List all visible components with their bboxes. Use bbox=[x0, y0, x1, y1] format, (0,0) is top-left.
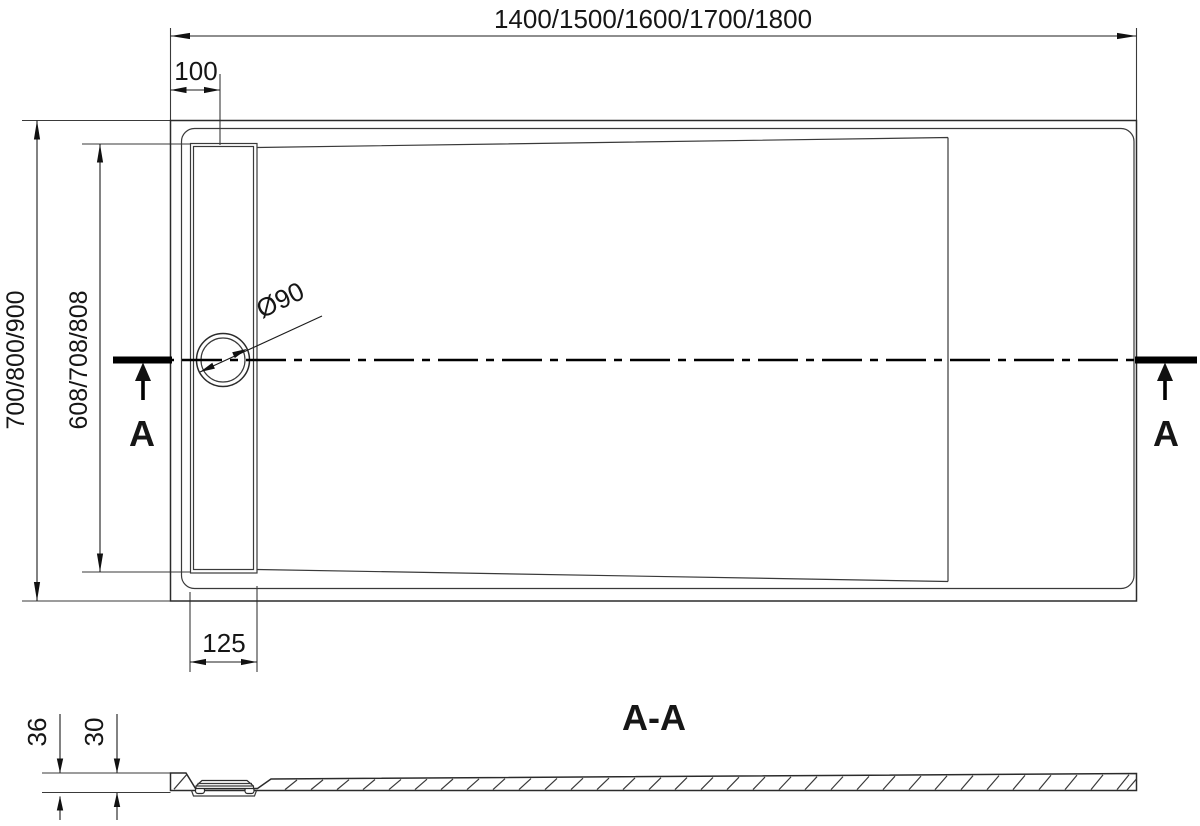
section-title: A-A bbox=[622, 697, 686, 738]
dim-body-height-label: 30 bbox=[79, 718, 109, 747]
section-profile bbox=[171, 773, 1137, 791]
section-cut: A A bbox=[113, 360, 1197, 454]
dim-total-height-label: 36 bbox=[22, 718, 52, 747]
arrowhead bbox=[241, 659, 257, 665]
dim-drain-offset-label: 100 bbox=[174, 56, 217, 86]
arrowhead bbox=[97, 554, 103, 573]
drain-cover-plate bbox=[196, 781, 254, 789]
drain: Ø90 bbox=[197, 276, 323, 387]
cut-arrowhead-right bbox=[1157, 363, 1173, 382]
arrowhead bbox=[34, 121, 40, 140]
extension-line bbox=[171, 28, 1137, 120]
arrowhead bbox=[57, 759, 63, 774]
dim-inner-width-label: 608/708/808 bbox=[65, 290, 93, 429]
drain-leader-line bbox=[200, 316, 322, 372]
extension-line bbox=[42, 773, 171, 793]
tray-rim-edge bbox=[182, 129, 1135, 589]
drain-diameter-label: Ø90 bbox=[251, 276, 308, 325]
arrowhead bbox=[114, 759, 120, 774]
dim-strip-width-label: 125 bbox=[202, 628, 245, 658]
dim-overall-length-label: 1400/1500/1600/1700/1800 bbox=[494, 4, 812, 34]
arrowhead bbox=[1117, 33, 1137, 39]
dim-body-height: 30 bbox=[79, 714, 120, 820]
arrowhead bbox=[97, 144, 103, 163]
arrowhead bbox=[57, 796, 63, 811]
arrowhead bbox=[171, 87, 187, 93]
dim-drain-offset: 100 bbox=[171, 56, 221, 145]
arrowhead bbox=[171, 33, 191, 39]
section-marker-right-label: A bbox=[1153, 413, 1179, 454]
dim-overall-width-label: 700/800/900 bbox=[2, 290, 30, 429]
arrowhead bbox=[114, 793, 120, 808]
arrowhead bbox=[34, 582, 40, 601]
section-marker-left-label: A bbox=[129, 413, 155, 454]
arrowhead bbox=[190, 659, 206, 665]
cut-arrowhead-left bbox=[135, 363, 151, 382]
arrowhead bbox=[204, 87, 220, 93]
dim-strip-width: 125 bbox=[190, 586, 257, 672]
dim-overall-length: 1400/1500/1600/1700/1800 bbox=[171, 4, 1137, 120]
section-view: A-A 36 30 bbox=[22, 697, 1137, 820]
shower-tray-drawing: 1400/1500/1600/1700/1800 100 700/800/900… bbox=[0, 0, 1200, 826]
plan-view: 1400/1500/1600/1700/1800 100 700/800/900… bbox=[2, 4, 1197, 672]
dim-total-height: 36 bbox=[22, 714, 63, 820]
technical-drawing-sheet: 1400/1500/1600/1700/1800 100 700/800/900… bbox=[0, 0, 1200, 826]
